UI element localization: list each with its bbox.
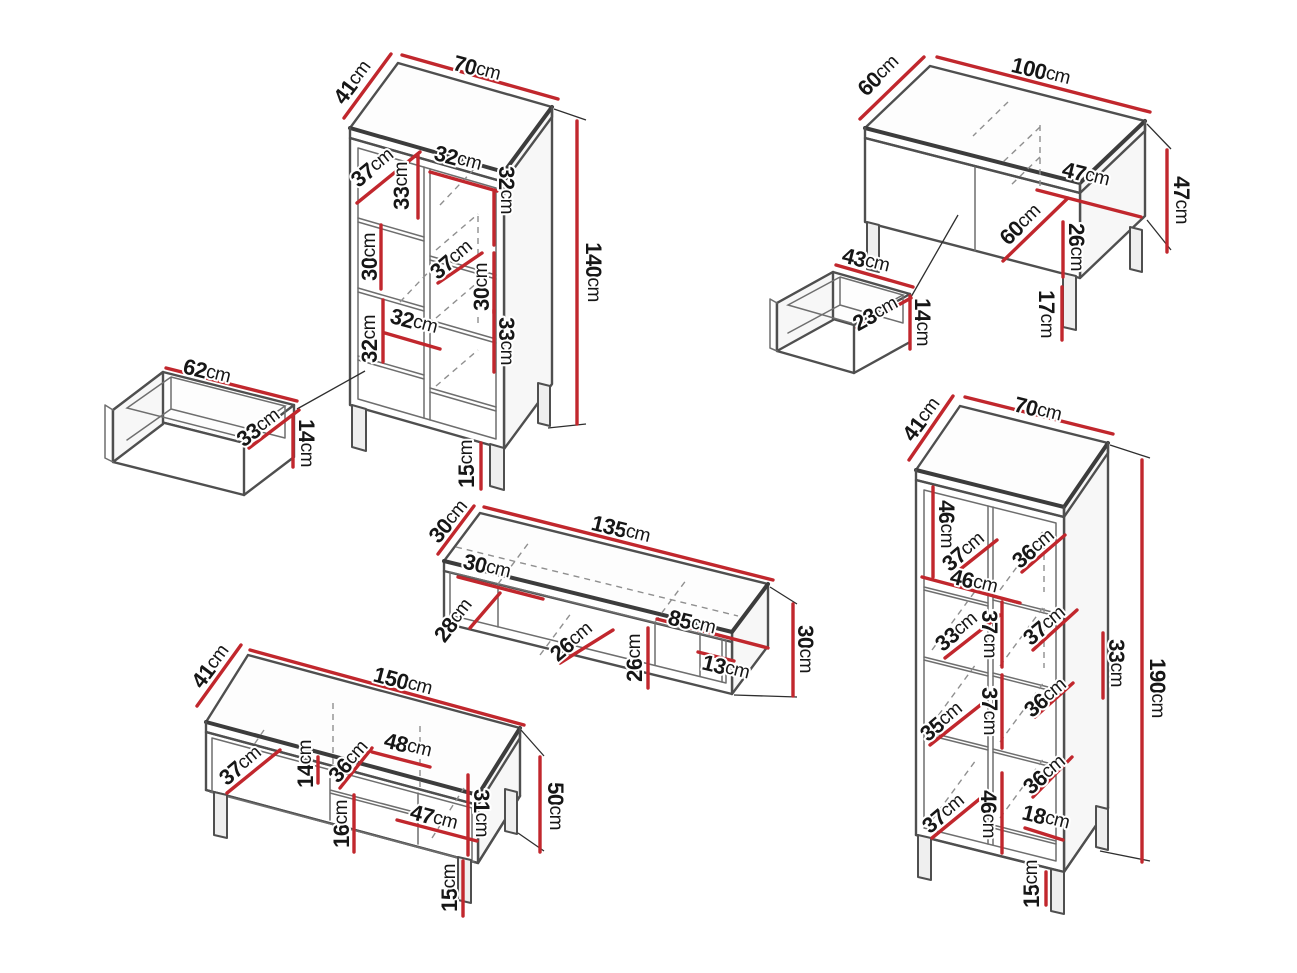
dimension-label: 30cm	[357, 233, 382, 281]
dimension-label: 26cm	[622, 634, 647, 682]
dimension-label: 15cm	[1019, 860, 1044, 908]
dimension-label: 30cm	[794, 625, 819, 673]
dimension-label: 47cm	[1170, 176, 1195, 224]
wall-shelf-drawing: 30cm135cm30cm28cm26cm26cm85cm13cm30cm	[423, 495, 818, 697]
tall-cabinet-drawing: 41cm70cm140cm37cm33cm32cm32cm30cm37cm30c…	[297, 50, 607, 490]
tv-stand-drawing: 41cm150cm50cm37cm14cm36cm48cm16cm47cm31c…	[186, 639, 569, 916]
dimension-label: 14cm	[911, 298, 936, 346]
dimension-label: 60cm	[852, 49, 904, 100]
dimension-label: 14cm	[295, 419, 320, 467]
dimension-label: 15cm	[437, 864, 462, 912]
dimension-label: 33cm	[389, 162, 414, 210]
dimension-label: 16cm	[329, 800, 354, 848]
dimension-label: 30cm	[469, 263, 494, 311]
dimension-label: 15cm	[454, 440, 479, 488]
furniture-dimensions-diagram: 41cm70cm140cm37cm33cm32cm32cm30cm37cm30c…	[0, 0, 1297, 973]
dimension-label: 37cm	[978, 687, 1003, 735]
furniture-dimensions-page: 41cm70cm140cm37cm33cm32cm32cm30cm37cm30c…	[0, 0, 1297, 973]
drawer-62-drawing: 62cm33cm14cm	[105, 353, 320, 495]
dimension-label: 31cm	[470, 789, 495, 837]
bookcase-drawing: 41cm70cm190cm46cm37cm36cm46cm33cm37cm37c…	[897, 391, 1171, 914]
dimension-label: 50cm	[544, 782, 569, 830]
dimension-label: 33cm	[495, 317, 520, 365]
dimension-label: 46cm	[977, 790, 1002, 838]
dimension-label: 190cm	[1146, 658, 1171, 718]
dimension-label: 26cm	[1065, 223, 1090, 271]
dimension-label: 32cm	[357, 315, 382, 363]
drawer-43-drawing: 43cm23cm14cm	[770, 242, 936, 373]
dimension-label: 17cm	[1035, 290, 1060, 338]
dimension-label: 46cm	[935, 500, 960, 548]
dimension-label: 32cm	[495, 166, 520, 214]
dimension-label: 140cm	[582, 242, 607, 302]
dimension-label: 14cm	[293, 740, 318, 788]
dimension-label: 33cm	[1105, 639, 1130, 687]
dimension-label: 37cm	[978, 610, 1003, 658]
